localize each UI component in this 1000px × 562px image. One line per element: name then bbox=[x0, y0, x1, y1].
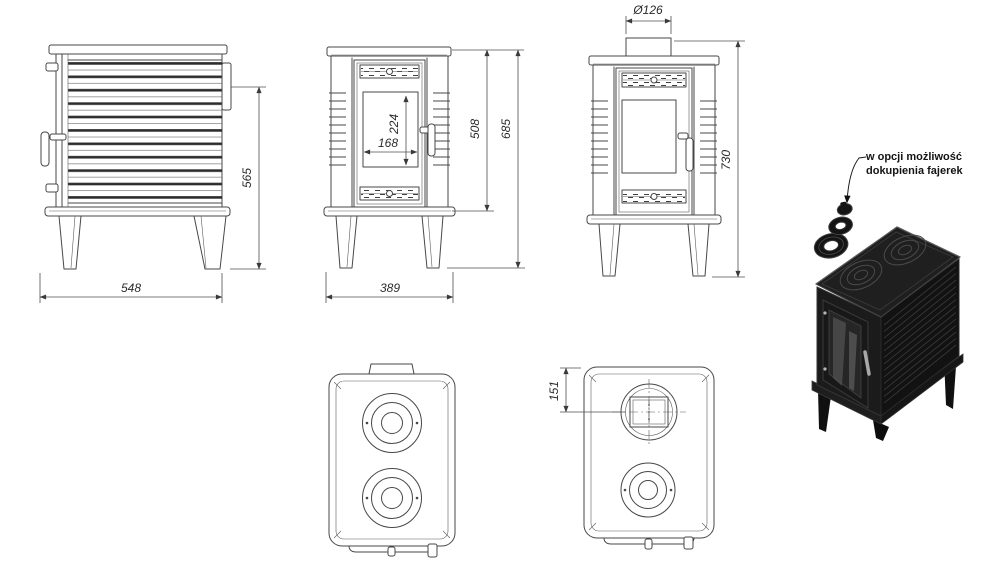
front-legs bbox=[336, 216, 443, 268]
option-note-line1: w opcji możliwość bbox=[865, 151, 962, 163]
flue-view-base bbox=[587, 215, 721, 224]
front-bottom-band bbox=[360, 187, 419, 200]
dimension-total-height: 685 bbox=[447, 50, 525, 268]
flue-top-band bbox=[622, 73, 686, 87]
glass-width-label: 168 bbox=[378, 136, 398, 150]
front-right-pillar-ribs bbox=[433, 92, 450, 170]
top-plate-outline bbox=[329, 374, 455, 546]
body-height-label: 508 bbox=[468, 119, 482, 139]
flue-view-legs bbox=[599, 224, 709, 276]
side-view-drawing: 548 565 bbox=[40, 45, 266, 303]
door-hinge-top bbox=[46, 63, 58, 71]
glass-height-label: 224 bbox=[387, 114, 401, 135]
flue-view-top-plate bbox=[589, 56, 719, 65]
front-view-flue-drawing: Ø126 730 bbox=[587, 3, 745, 277]
top-flue-front-peg bbox=[684, 537, 693, 549]
front-top-band bbox=[360, 65, 419, 78]
flue-view-door-glass bbox=[622, 100, 676, 173]
front-left-pillar-ribs bbox=[329, 92, 346, 170]
flue-bottom-band bbox=[622, 190, 686, 203]
top-flue-front-knob bbox=[645, 539, 652, 549]
stove-hinge-bottom bbox=[823, 367, 826, 370]
top-rear-tab bbox=[369, 364, 414, 374]
stove-rings-icon bbox=[805, 200, 863, 261]
front-base bbox=[324, 207, 455, 216]
rear-flue-outlet bbox=[222, 63, 231, 110]
top-view-flue-drawing: 151 bbox=[547, 367, 714, 549]
option-note-line2: dokupienia fajerek bbox=[866, 165, 963, 177]
front-width-label: 389 bbox=[380, 281, 400, 295]
door-hinge-bottom bbox=[46, 184, 58, 192]
overall-height-label: 730 bbox=[719, 150, 733, 170]
side-width-label: 548 bbox=[121, 281, 141, 295]
side-ribs bbox=[68, 62, 222, 202]
rings-leader-arrow bbox=[847, 157, 866, 202]
front-top-plate bbox=[327, 47, 451, 56]
top-front-knob bbox=[388, 547, 395, 556]
front-view-drawing: 168 224 508 685 389 bbox=[324, 47, 525, 303]
top-front-peg bbox=[428, 544, 437, 557]
dimension-side-height: 565 bbox=[230, 87, 266, 269]
flue-right-pillar-ribs bbox=[700, 100, 717, 180]
top-view-drawing bbox=[329, 364, 455, 557]
flue-offset-label: 151 bbox=[547, 381, 561, 401]
side-top-plate bbox=[49, 45, 227, 54]
dimension-side-width: 548 bbox=[40, 273, 222, 303]
option-note: w opcji możliwość dokupienia fajerek bbox=[865, 151, 963, 177]
stove-3d-render bbox=[805, 157, 963, 441]
dimension-front-width: 389 bbox=[326, 272, 453, 303]
dimension-flue-diameter: Ø126 bbox=[626, 3, 671, 34]
total-height-label: 685 bbox=[499, 119, 513, 139]
stove-hinge-top bbox=[823, 311, 826, 314]
side-legs bbox=[59, 216, 226, 269]
technical-drawing-sheet: 548 565 bbox=[0, 0, 1000, 562]
flue-diameter-label: Ø126 bbox=[632, 3, 663, 17]
drawing-canvas: 548 565 bbox=[0, 0, 1000, 562]
side-height-label: 565 bbox=[240, 168, 254, 188]
dimension-body-height: 508 bbox=[452, 50, 524, 211]
flue-pipe bbox=[626, 38, 671, 56]
flue-left-pillar-ribs bbox=[591, 100, 608, 180]
side-base bbox=[45, 207, 230, 216]
